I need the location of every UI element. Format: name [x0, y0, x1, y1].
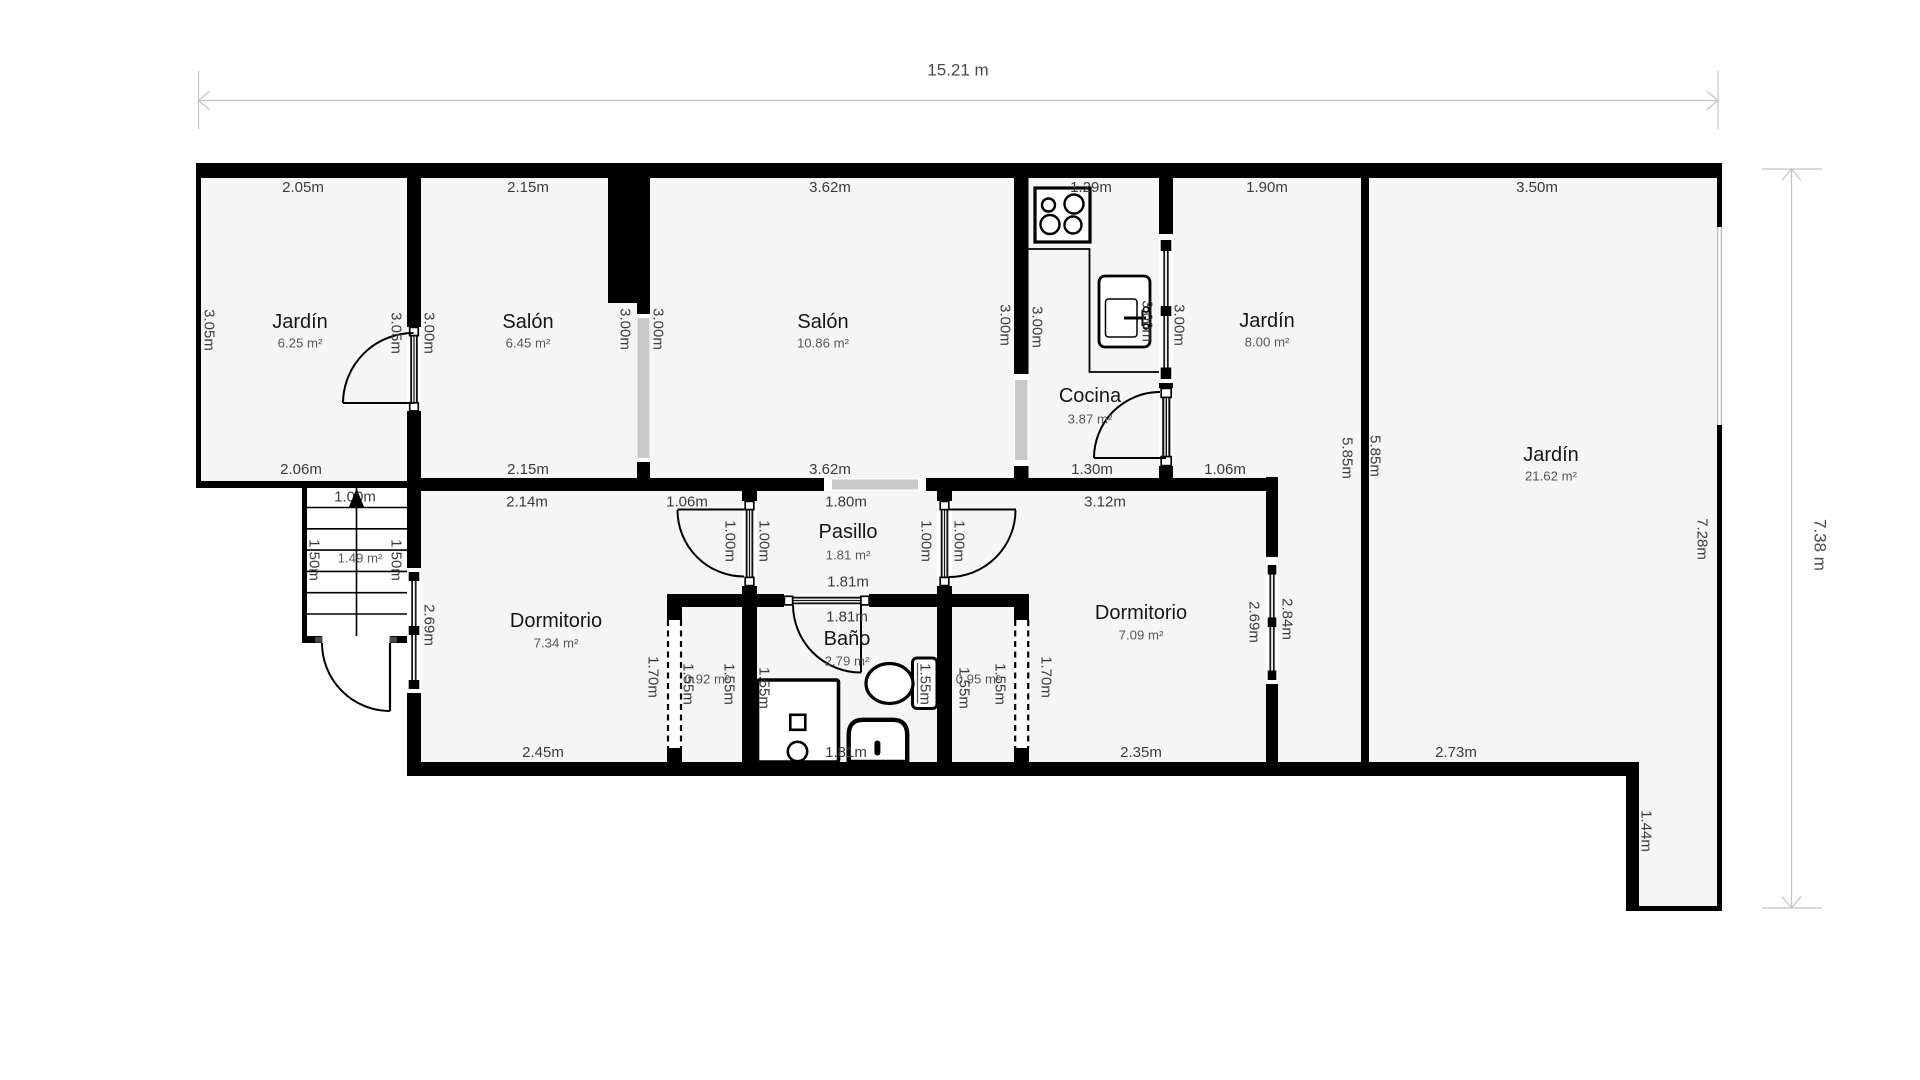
svg-text:1.49 m²: 1.49 m² [338, 551, 383, 566]
svg-text:1.00m: 1.00m [722, 520, 739, 562]
svg-text:8.00 m²: 8.00 m² [1245, 335, 1290, 350]
svg-text:3.00m: 3.00m [1029, 306, 1046, 348]
svg-text:2.06m: 2.06m [280, 461, 322, 478]
svg-text:3.05m: 3.05m [388, 312, 405, 354]
svg-text:1.55m: 1.55m [917, 663, 934, 705]
svg-text:1.81m: 1.81m [825, 744, 867, 761]
svg-text:3.00m: 3.00m [421, 312, 438, 354]
svg-text:6.45 m²: 6.45 m² [506, 336, 551, 351]
svg-text:21.62 m²: 21.62 m² [1525, 469, 1578, 484]
svg-text:2.14m: 2.14m [506, 494, 548, 511]
svg-text:Salón: Salón [502, 311, 553, 333]
svg-text:15.21 m: 15.21 m [927, 61, 988, 80]
svg-text:1.90m: 1.90m [1246, 179, 1288, 196]
svg-text:Baño: Baño [824, 628, 871, 650]
svg-text:5.85m: 5.85m [1339, 437, 1356, 479]
svg-text:3.50m: 3.50m [1516, 179, 1558, 196]
svg-text:7.28m: 7.28m [1694, 518, 1711, 560]
svg-text:3.00m: 3.00m [617, 308, 634, 350]
svg-text:1.50m: 1.50m [388, 539, 405, 581]
svg-text:1.55m: 1.55m [956, 667, 973, 709]
svg-text:7.09 m²: 7.09 m² [1119, 628, 1164, 643]
svg-text:1.29m: 1.29m [1070, 179, 1112, 196]
svg-text:1.00m: 1.00m [756, 520, 773, 562]
svg-text:Jardín: Jardín [1239, 310, 1295, 332]
svg-text:Salón: Salón [797, 311, 848, 333]
svg-text:3.12m: 3.12m [1084, 494, 1126, 511]
svg-text:1.50m: 1.50m [306, 539, 323, 581]
svg-text:1.55m: 1.55m [756, 667, 773, 709]
svg-text:3.00m: 3.00m [650, 308, 667, 350]
svg-text:2.73m: 2.73m [1435, 744, 1477, 761]
svg-text:1.00m: 1.00m [951, 520, 968, 562]
svg-text:3.00m: 3.00m [1171, 304, 1188, 346]
svg-text:1.44m: 1.44m [1638, 810, 1655, 852]
svg-text:6.25 m²: 6.25 m² [278, 336, 323, 351]
svg-text:3.05m: 3.05m [201, 309, 218, 351]
svg-text:3.00m: 3.00m [1139, 300, 1156, 342]
svg-text:3.62m: 3.62m [809, 179, 851, 196]
svg-text:1.06m: 1.06m [666, 494, 708, 511]
svg-text:Cocina: Cocina [1059, 385, 1122, 407]
svg-text:Pasillo: Pasillo [819, 521, 878, 543]
svg-text:1.55m: 1.55m [721, 663, 738, 705]
svg-text:Dormitorio: Dormitorio [1095, 602, 1187, 624]
svg-text:1.81m: 1.81m [827, 574, 869, 591]
svg-text:1.80m: 1.80m [825, 494, 867, 511]
svg-text:3.00m: 3.00m [997, 304, 1014, 346]
svg-text:2.84m: 2.84m [1279, 598, 1296, 640]
svg-text:1.81m: 1.81m [826, 609, 868, 626]
svg-text:2.15m: 2.15m [507, 461, 549, 478]
svg-text:1.30m: 1.30m [1071, 461, 1113, 478]
svg-text:10.86 m²: 10.86 m² [797, 336, 850, 351]
svg-text:1.55m: 1.55m [992, 663, 1009, 705]
svg-text:1.55m: 1.55m [680, 663, 697, 705]
svg-text:1.00m: 1.00m [918, 520, 935, 562]
svg-text:2.79 m²: 2.79 m² [825, 654, 870, 669]
svg-text:2.69m: 2.69m [421, 604, 438, 646]
svg-text:2.35m: 2.35m [1120, 744, 1162, 761]
svg-text:3.62m: 3.62m [809, 461, 851, 478]
svg-text:1.70m: 1.70m [645, 656, 662, 698]
svg-text:Jardín: Jardín [272, 311, 328, 333]
svg-text:7.34 m²: 7.34 m² [534, 636, 579, 651]
svg-text:2.69m: 2.69m [1246, 601, 1263, 643]
svg-text:Dormitorio: Dormitorio [510, 610, 602, 632]
svg-text:3.87 m²: 3.87 m² [1068, 412, 1113, 427]
svg-text:2.05m: 2.05m [282, 179, 324, 196]
svg-text:7.38 m: 7.38 m [1811, 519, 1830, 571]
svg-text:1.81 m²: 1.81 m² [826, 548, 871, 563]
svg-text:2.45m: 2.45m [522, 744, 564, 761]
svg-text:1.70m: 1.70m [1038, 656, 1055, 698]
svg-text:Jardín: Jardín [1523, 444, 1579, 466]
svg-text:5.85m: 5.85m [1367, 435, 1384, 477]
svg-text:1.06m: 1.06m [1204, 461, 1246, 478]
svg-text:2.15m: 2.15m [507, 179, 549, 196]
